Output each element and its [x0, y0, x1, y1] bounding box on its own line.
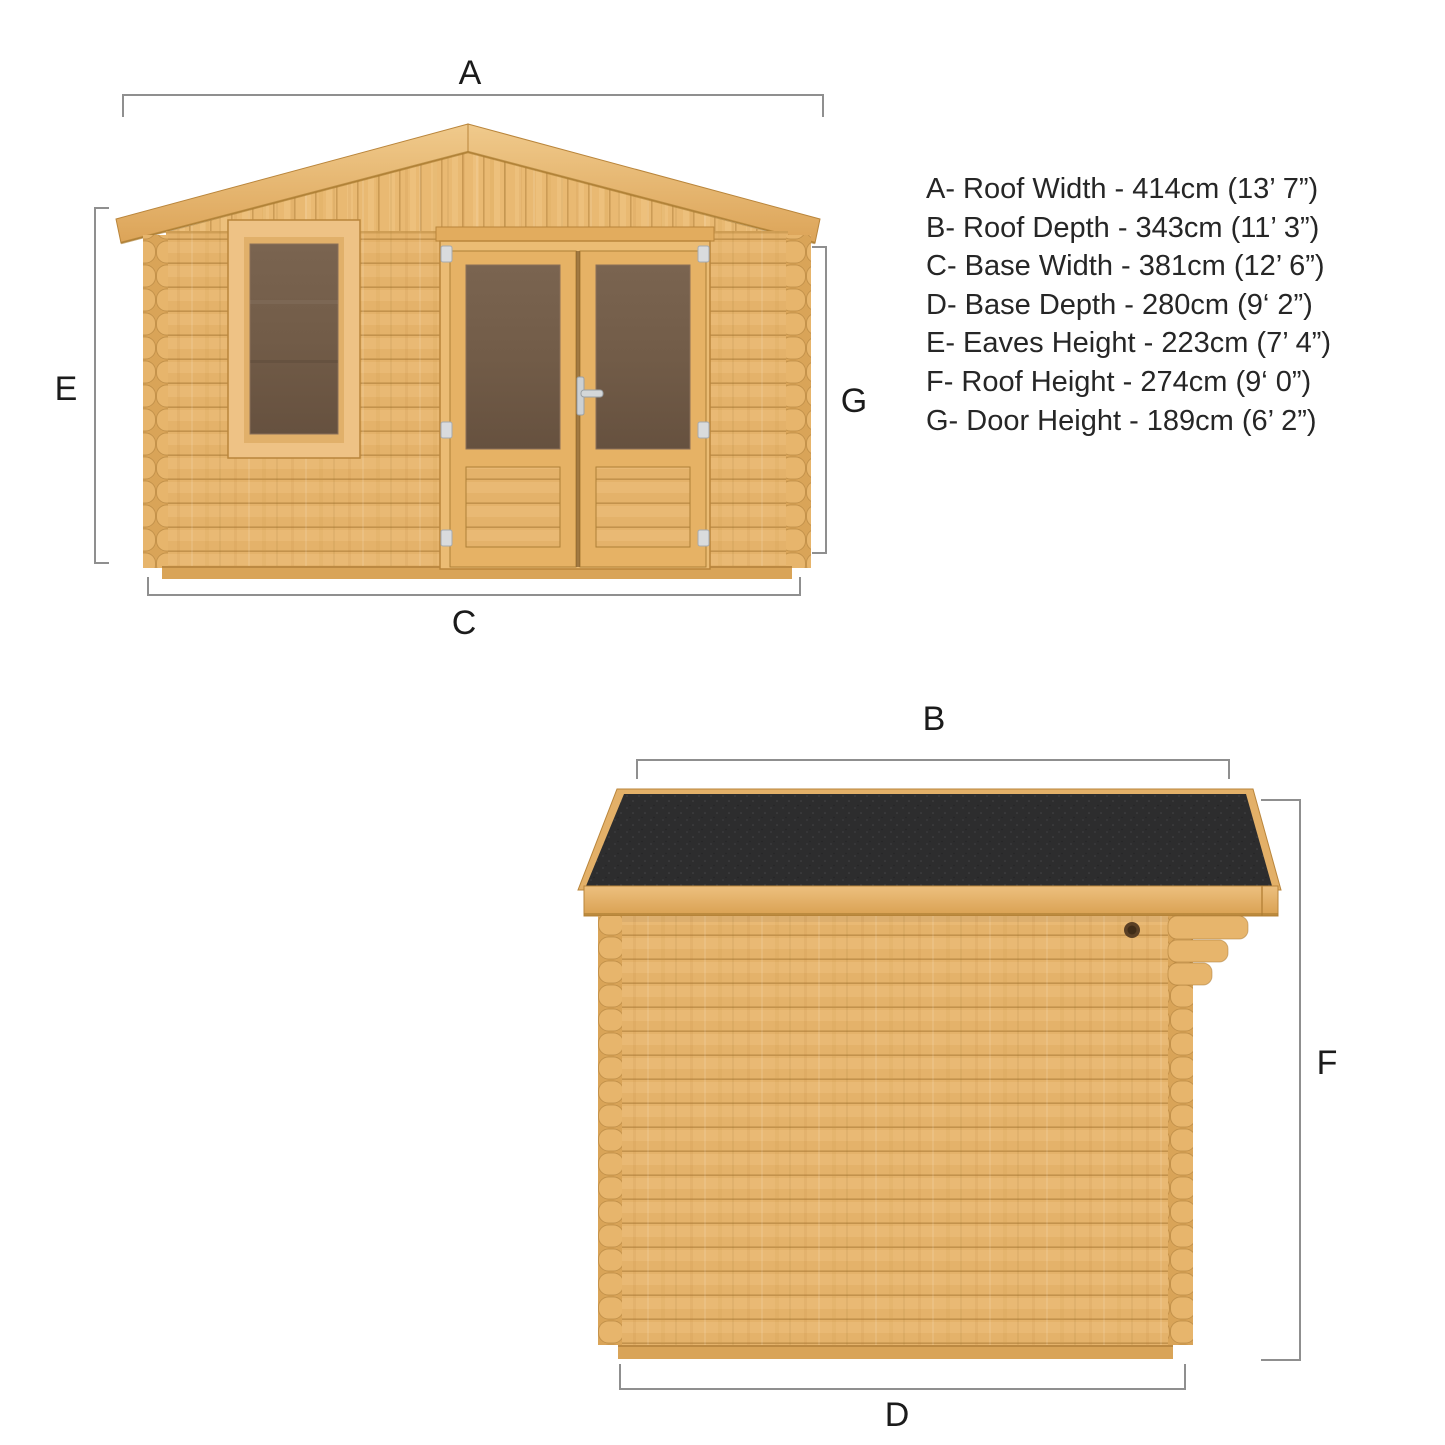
dim-label-base-width: C	[452, 606, 477, 640]
front-doors	[436, 227, 714, 569]
dimension-spec-list: A- Roof Width - 414cm (13’ 7”) B- Roof D…	[926, 170, 1331, 440]
knot-hole	[1124, 922, 1140, 938]
dim-label-eaves-height: E	[55, 372, 78, 406]
side-right-corner-logs	[1168, 916, 1248, 1345]
dim-label-base-depth: D	[885, 1398, 910, 1432]
dim-E-eaves-height-line	[95, 208, 109, 563]
roof-felt	[586, 794, 1272, 886]
spec-roof-width: A- Roof Width - 414cm (13’ 7”)	[926, 170, 1331, 209]
dim-G-door-height-line	[812, 247, 826, 553]
gable-log-step-3	[1168, 963, 1212, 985]
window-glass	[250, 244, 338, 434]
spec-base-depth: D- Base Depth - 280cm (9‘ 2”)	[926, 286, 1331, 325]
dim-A-roof-width-line	[123, 95, 823, 117]
spec-eaves-height: E- Eaves Height - 223cm (7’ 4”)	[926, 324, 1331, 363]
door-leaf-right	[580, 251, 706, 567]
door-glass-left	[466, 265, 560, 449]
dimension-diagram: A E C G B F D A- Roof Width - 414cm (13’…	[0, 0, 1445, 1445]
spec-roof-height: F- Roof Height - 274cm (9‘ 0”)	[926, 363, 1331, 402]
dim-label-door-height: G	[841, 384, 867, 418]
door-header	[436, 227, 714, 241]
dim-D-base-depth-line	[620, 1364, 1185, 1389]
dim-B-roof-depth-line	[637, 760, 1229, 779]
side-left-corner-logs	[598, 916, 622, 1345]
spec-door-height: G- Door Height - 189cm (6’ 2”)	[926, 402, 1331, 441]
front-left-corner-logs	[143, 235, 168, 568]
dim-label-roof-width: A	[459, 56, 482, 90]
door-glass-right	[596, 265, 690, 449]
dim-label-roof-height: F	[1317, 1046, 1338, 1080]
door-panel-right	[596, 467, 690, 547]
front-window	[228, 220, 360, 458]
dim-C-base-width-line	[148, 577, 800, 595]
spec-base-width: C- Base Width - 381cm (12’ 6”)	[926, 247, 1331, 286]
side-roof	[578, 789, 1281, 916]
side-elevation	[578, 760, 1300, 1389]
door-leaf-left	[450, 251, 576, 567]
side-wall	[607, 916, 1173, 1345]
gable-log-step-1	[1168, 916, 1248, 939]
roof-fascia	[584, 886, 1278, 916]
gable-log-step-2	[1168, 940, 1228, 962]
front-elevation	[95, 95, 826, 595]
door-panel-left	[466, 467, 560, 547]
dim-label-roof-depth: B	[923, 702, 946, 736]
spec-roof-depth: B- Roof Depth - 343cm (11’ 3”)	[926, 209, 1331, 248]
front-right-corner-logs	[786, 235, 811, 568]
side-base	[618, 1345, 1173, 1359]
